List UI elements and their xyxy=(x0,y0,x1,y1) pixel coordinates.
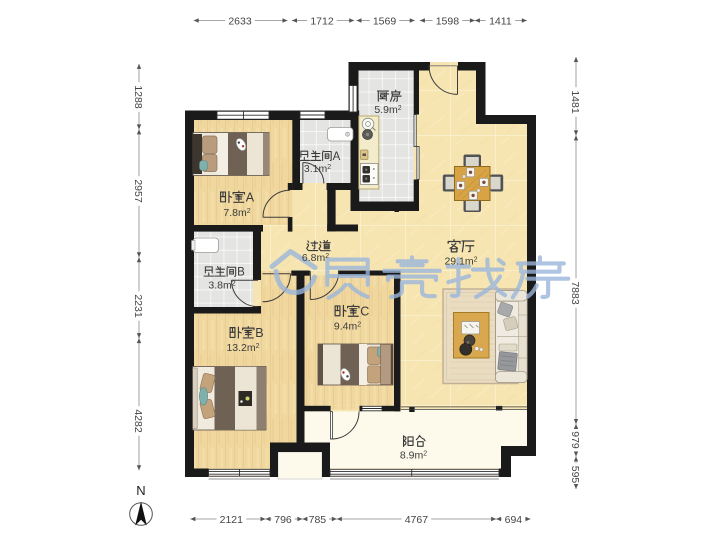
svg-text:6.8m2: 6.8m2 xyxy=(302,252,329,264)
svg-text:2231: 2231 xyxy=(132,294,144,318)
svg-text:7883: 7883 xyxy=(569,281,581,305)
svg-text:2957: 2957 xyxy=(132,179,144,203)
svg-text:B: B xyxy=(255,326,263,340)
svg-text:1481: 1481 xyxy=(569,90,581,114)
svg-text:796: 796 xyxy=(274,514,292,526)
svg-text:C: C xyxy=(360,305,369,319)
svg-text:3.8m2: 3.8m2 xyxy=(208,280,235,292)
svg-text:595: 595 xyxy=(569,466,581,484)
svg-text:29.1m2: 29.1m2 xyxy=(444,256,477,268)
svg-text:2633: 2633 xyxy=(228,15,252,27)
svg-text:694: 694 xyxy=(505,514,523,526)
svg-text:N: N xyxy=(136,483,145,498)
svg-text:1712: 1712 xyxy=(310,15,334,27)
svg-text:1411: 1411 xyxy=(489,15,512,27)
svg-text:13.2m2: 13.2m2 xyxy=(226,342,259,354)
svg-text:4767: 4767 xyxy=(405,514,429,526)
svg-text:1288: 1288 xyxy=(132,85,144,109)
svg-text:3.1m2: 3.1m2 xyxy=(304,163,331,175)
svg-text:5.9m2: 5.9m2 xyxy=(374,104,401,116)
svg-text:8.9m2: 8.9m2 xyxy=(400,449,427,461)
svg-text:1569: 1569 xyxy=(373,15,397,27)
svg-text:7.8m2: 7.8m2 xyxy=(223,207,250,219)
svg-text:4282: 4282 xyxy=(132,409,144,433)
svg-text:A: A xyxy=(333,151,341,163)
svg-text:979: 979 xyxy=(569,431,581,449)
svg-text:9.4m2: 9.4m2 xyxy=(334,321,361,333)
svg-text:A: A xyxy=(246,191,255,205)
svg-text:1598: 1598 xyxy=(436,15,460,27)
svg-text:785: 785 xyxy=(309,514,327,526)
svg-text:B: B xyxy=(237,267,245,279)
svg-text:2121: 2121 xyxy=(220,514,244,526)
